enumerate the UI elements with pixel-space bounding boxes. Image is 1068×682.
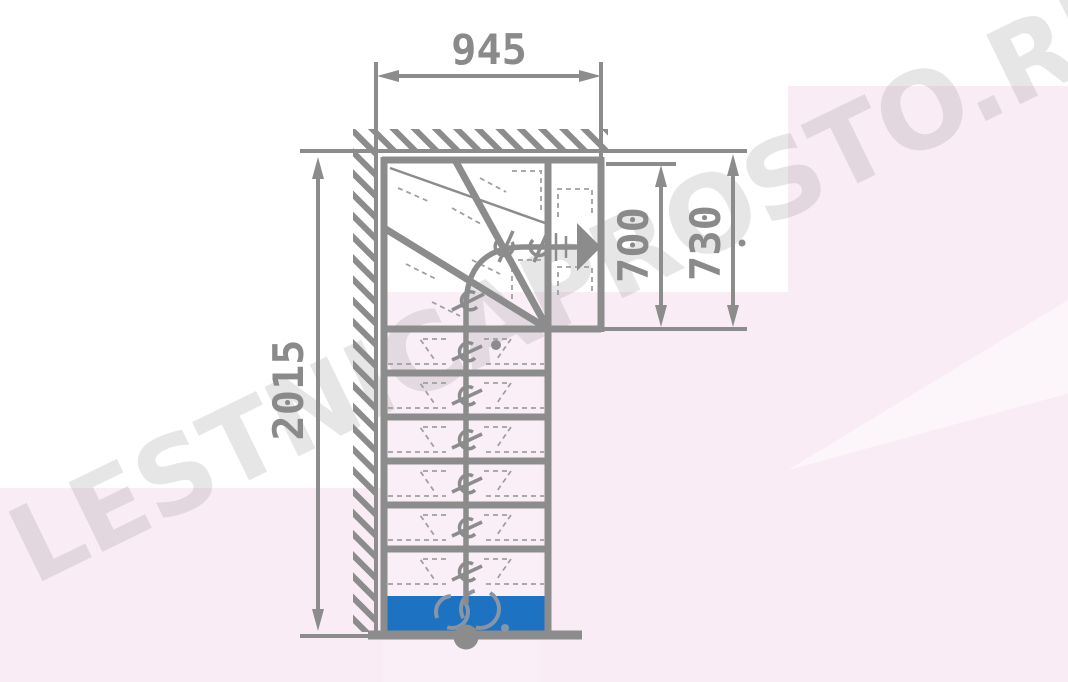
dimension-700-label: 700 (609, 207, 658, 283)
dim-arrow-bottom (312, 609, 324, 631)
staircase-plan: 945 2015 700 730 (0, 0, 1068, 682)
small-dot-marker (739, 240, 746, 247)
dim-arrow-bottom (727, 305, 739, 327)
small-dot-marker (501, 624, 509, 632)
dim-arrow-bottom (655, 305, 667, 327)
wall-hatch-top (356, 129, 608, 152)
dimension-700: 700 (609, 165, 667, 327)
dimension-945: 945 (377, 25, 601, 82)
tread-dashed-details (388, 171, 592, 620)
wall-hatch-left (353, 129, 377, 632)
dimension-2015-label: 2015 (264, 339, 313, 440)
small-dot-marker (491, 340, 501, 350)
dim-arrow-right (579, 70, 601, 82)
dim-arrow-top (727, 154, 739, 176)
drawing-canvas: LESTNICAPROSTO.RU (0, 0, 1068, 682)
start-point-marker (454, 625, 479, 650)
dimension-730: 730 (681, 154, 739, 327)
direction-arrow (577, 223, 601, 271)
dimension-2015: 2015 (264, 157, 324, 631)
dim-arrow-left (377, 70, 399, 82)
dim-arrow-top (312, 157, 324, 179)
dimension-730-label: 730 (681, 205, 730, 281)
dim-arrow-top (655, 165, 667, 187)
dimension-945-label: 945 (451, 25, 527, 74)
